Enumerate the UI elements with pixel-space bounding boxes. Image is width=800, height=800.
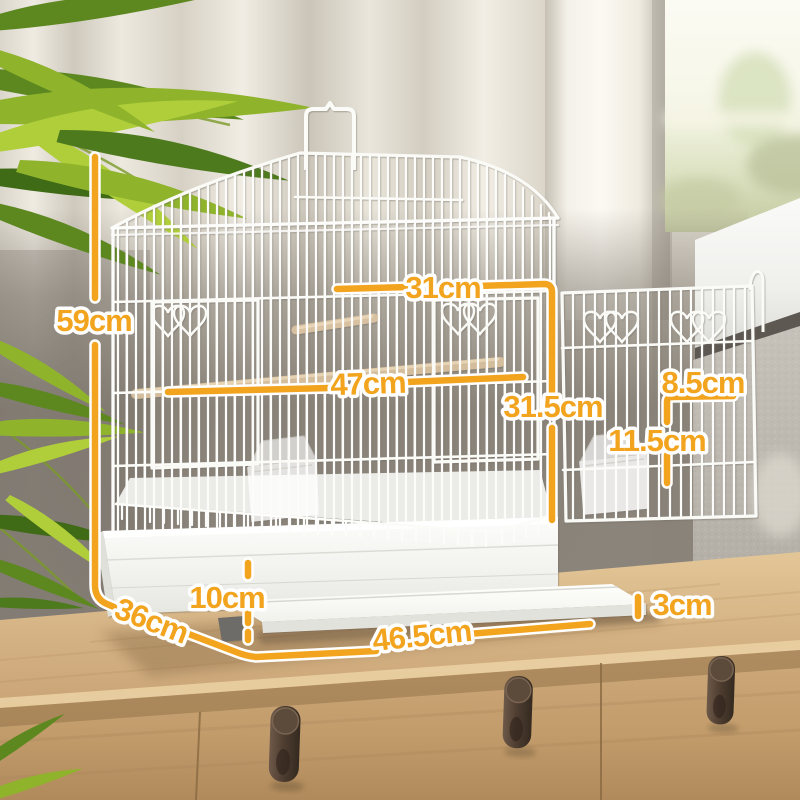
dim-label-door-height: 11.5cm bbox=[608, 423, 705, 458]
dim-label-top-inner-width: 31cm bbox=[405, 270, 480, 305]
dim-label-front-inner-height: 31.5cm bbox=[503, 389, 602, 424]
dim-line-perch-left bbox=[168, 388, 329, 392]
dim-label-base-height: 10cm bbox=[189, 580, 264, 615]
dim-label-door-width: 8.5cm bbox=[662, 365, 745, 400]
scene-svg: 59cm 31cm 47cm 31.5cm 8.5cm 11.5cm 10cm … bbox=[0, 0, 800, 800]
cage-foot-left bbox=[218, 616, 244, 642]
dim-label-perch-width: 47cm bbox=[330, 365, 406, 403]
dim-label-height: 59cm bbox=[56, 303, 131, 338]
dim-line-top-width-left bbox=[337, 287, 409, 289]
product-dimension-image: 59cm 31cm 47cm 31.5cm 8.5cm 11.5cm 10cm … bbox=[0, 0, 800, 800]
dim-label-tray-lip: 3cm bbox=[652, 587, 711, 622]
